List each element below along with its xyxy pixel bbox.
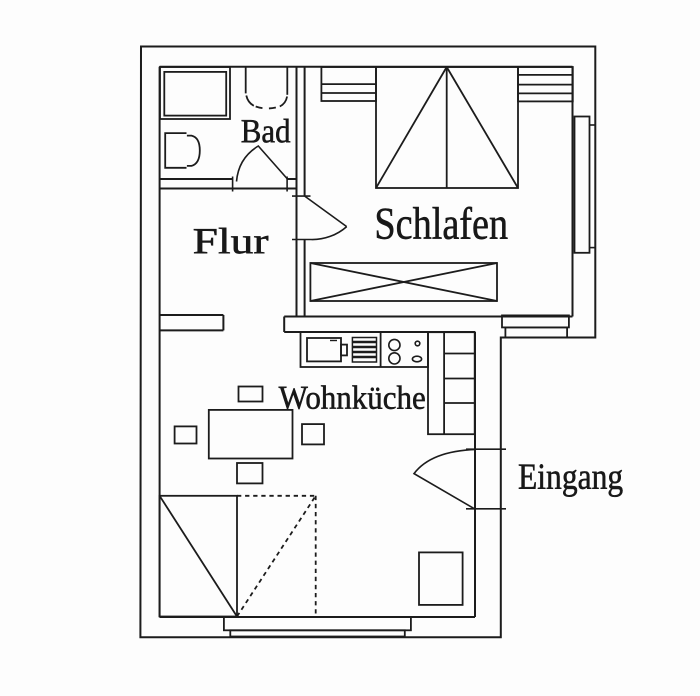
svg-text:Schlafen: Schlafen — [374, 198, 508, 249]
svg-text:Flur: Flur — [193, 220, 269, 261]
svg-text:Eingang: Eingang — [518, 456, 623, 497]
svg-text:Wohnküche: Wohnküche — [279, 380, 426, 417]
svg-text:Bad: Bad — [241, 113, 291, 150]
